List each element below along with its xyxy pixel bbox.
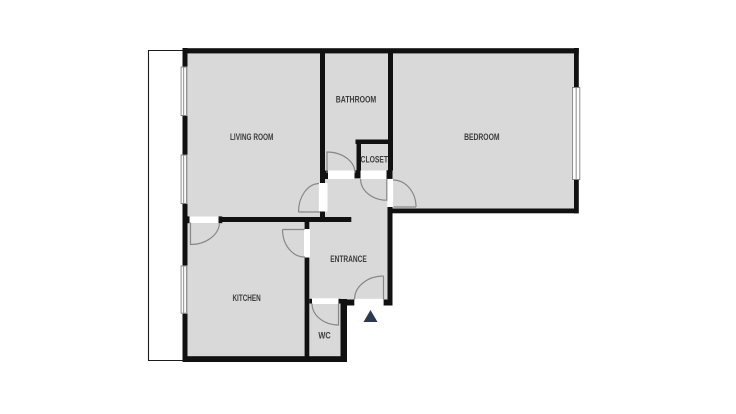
svg-text:KITCHEN: KITCHEN bbox=[232, 293, 261, 304]
svg-text:LIVING ROOM: LIVING ROOM bbox=[230, 132, 274, 142]
svg-text:BEDROOM: BEDROOM bbox=[464, 132, 500, 142]
svg-text:CLOSET: CLOSET bbox=[361, 154, 389, 164]
svg-text:WC: WC bbox=[318, 330, 330, 341]
svg-text:ENTRANCE: ENTRANCE bbox=[330, 254, 367, 264]
svg-text:BATHROOM: BATHROOM bbox=[336, 95, 377, 105]
